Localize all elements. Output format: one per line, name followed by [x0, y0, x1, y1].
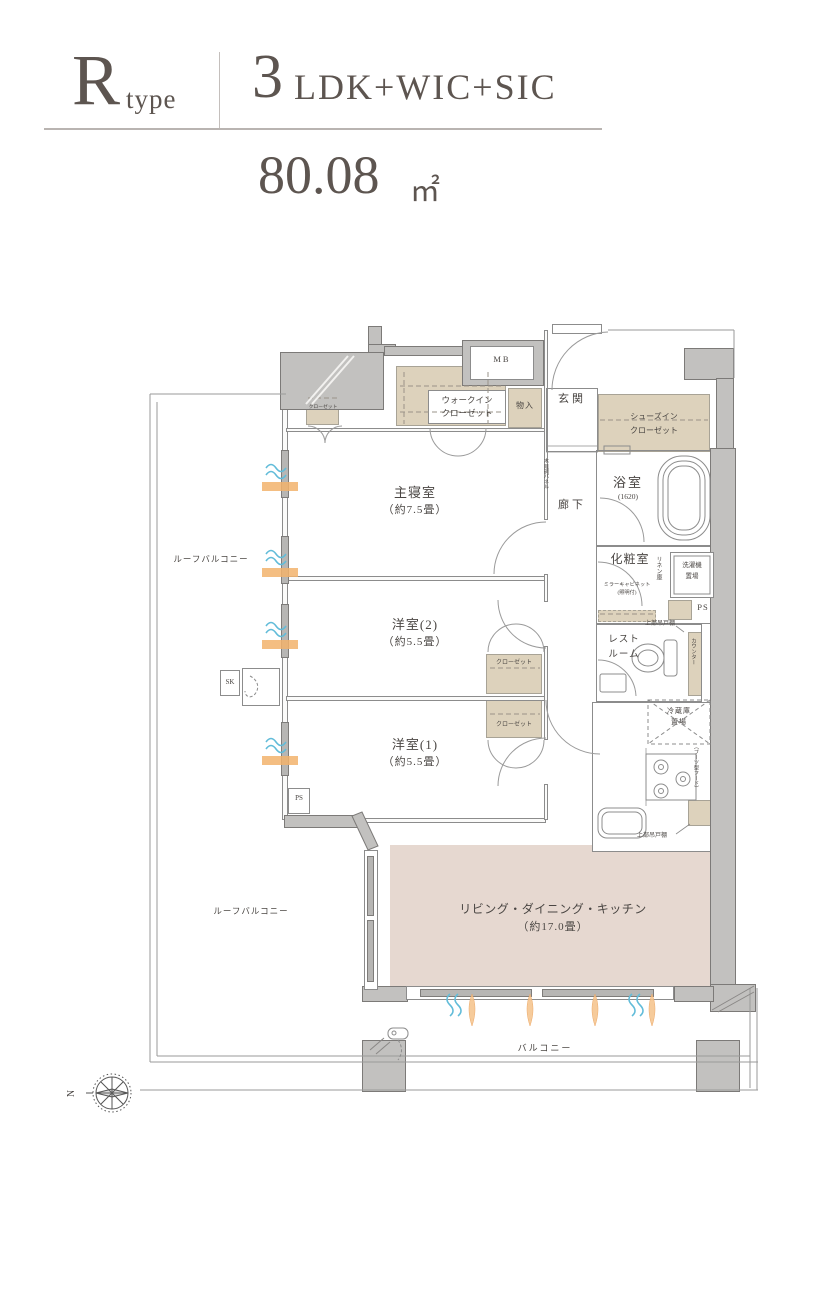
wall-hall-4 [544, 784, 548, 820]
type-letter: R [72, 44, 120, 116]
wall-top-right-chunk [684, 348, 734, 380]
pillar-right [696, 1040, 740, 1092]
room-powder-name: 化粧室 [598, 551, 662, 568]
closet-center-2 [486, 698, 542, 738]
sk-label: SK [220, 678, 240, 688]
compass-icon [86, 1074, 131, 1112]
wall-ldk-bottom-right [674, 986, 714, 1002]
pillar-left [362, 1040, 406, 1092]
wall-top-band [384, 346, 464, 356]
monoire-label: 物入 [508, 400, 542, 411]
wall-hall-3 [544, 646, 548, 740]
room-master-size: （約7.5畳） [330, 503, 500, 518]
wall-right-upper [716, 378, 734, 452]
hanging-cabinet-label-1: 上部吊戸棚 [636, 620, 684, 628]
wall-hall-2 [544, 574, 548, 602]
floorplan-page: R type 3 LDK+WIC+SIC 80.08 ㎡ [0, 0, 840, 1300]
fridge-label: 冷蔵庫 置場 [648, 706, 710, 728]
window-left-1 [281, 450, 289, 498]
roof-balcony-label-2: ルーフバルコニー [205, 906, 297, 918]
window-ldk-left-1 [367, 856, 374, 916]
balcony-label: バルコニー [500, 1042, 590, 1055]
room-west1-size: （約5.5畳） [330, 755, 500, 770]
wall-west2-west1 [286, 696, 546, 701]
wall-master-west2 [286, 576, 546, 581]
counter-label: カウンター [689, 638, 697, 694]
wall-west1-bl [284, 815, 362, 828]
roof-balcony-label-1: ルーフバルコニー [165, 554, 257, 566]
window-ldk-left-2 [367, 920, 374, 982]
wic-label: ウォークイン クローゼット [428, 394, 506, 420]
room-bath-size: (1620) [598, 492, 658, 503]
room-bath-name: 浴室 [598, 474, 658, 492]
window-left-2 [281, 536, 289, 584]
room-west2-name: 洋室(2) [330, 616, 500, 634]
sic-label: シューズイン クローゼット [600, 410, 708, 437]
wall-corner-bottom-right [710, 984, 756, 1012]
front-door-leaf [552, 324, 602, 334]
area-unit: ㎡ [410, 166, 440, 210]
wall-top-left-chunk [280, 352, 384, 410]
room-west2-size: （約5.5畳） [330, 635, 500, 650]
room-hallway-name: 廊下 [546, 498, 598, 513]
area-value: 80.08 [258, 148, 380, 202]
header-rule [44, 128, 602, 130]
closet-center-1-label: クローゼット [486, 659, 542, 667]
wall-master-top [286, 428, 546, 432]
header-divider [219, 52, 220, 130]
room-entrance-name: 玄関 [548, 392, 596, 407]
wood-panel-label: 木目調パネル [543, 458, 550, 516]
room-restroom-name: レスト ルーム [598, 633, 650, 663]
closet-center-2-label: クローゼット [486, 721, 542, 729]
plan-number: 3 [252, 46, 283, 108]
room-west1-name: 洋室(1) [330, 736, 500, 754]
room-ldk-name: リビング・ダイニング・キッチン [403, 901, 703, 918]
mb-label: MB [470, 354, 534, 366]
ps-left-label: PS [288, 794, 310, 804]
window-left-3 [281, 604, 289, 658]
washer-label: 洗濯機 置場 [670, 560, 714, 582]
type-word: type [126, 84, 177, 115]
window-ldk-bottom-2 [542, 989, 654, 997]
north-label: N [65, 1085, 79, 1101]
wall-right-main [710, 448, 736, 1012]
plan-text: LDK+WIC+SIC [294, 66, 557, 108]
closet-small-label: クローゼット [305, 405, 341, 412]
room-ldk-size: （約17.0畳） [403, 920, 703, 935]
hood-label: （ブーツ型フード） [693, 744, 700, 804]
window-ldk-bottom-1 [420, 989, 532, 997]
room-master-name: 主寝室 [330, 484, 500, 502]
sk-outer-box [242, 668, 280, 706]
hanging-cabinet-label-2: 上部吊戸棚 [626, 832, 678, 840]
window-left-4 [281, 722, 289, 776]
ps-label: PS [690, 602, 716, 614]
mirror-cabinet-label: ミラーキャビネット (照明付) [594, 582, 660, 598]
